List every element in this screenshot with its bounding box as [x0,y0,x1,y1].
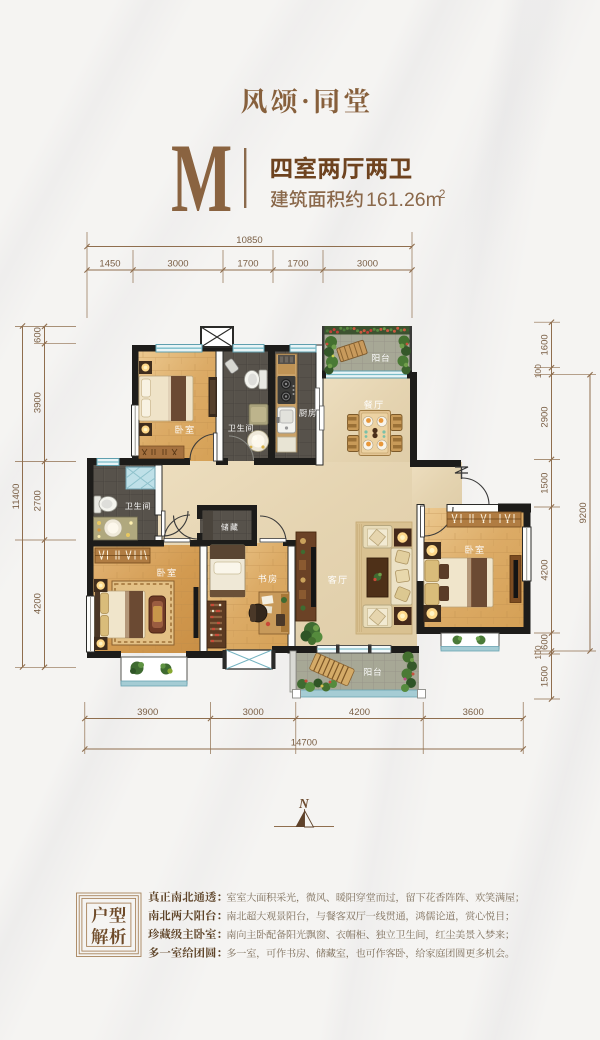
svg-text:9200: 9200 [578,502,589,523]
svg-text:4200: 4200 [540,559,551,580]
svg-text:1700: 1700 [287,259,308,270]
svg-text:1450: 1450 [99,259,120,270]
svg-text:M: M [171,123,232,233]
svg-text:2: 2 [439,189,445,201]
svg-text:2900: 2900 [540,406,551,427]
svg-text:1500: 1500 [540,473,551,494]
svg-text:3900: 3900 [137,707,158,718]
svg-text:11400: 11400 [11,484,22,510]
svg-text:3000: 3000 [357,259,378,270]
svg-text:1600: 1600 [540,334,551,355]
svg-text:3900: 3900 [33,392,44,413]
svg-text:161.26m: 161.26m [366,189,442,211]
svg-text:600: 600 [33,327,44,343]
svg-text:1500: 1500 [540,666,551,687]
svg-text:3000: 3000 [243,707,264,718]
svg-text:3600: 3600 [463,707,484,718]
svg-text:100: 100 [533,364,543,378]
svg-text:N: N [298,796,310,811]
svg-text:10850: 10850 [236,235,262,246]
svg-text:100: 100 [533,645,543,659]
svg-text:4200: 4200 [33,593,44,614]
svg-text:2700: 2700 [33,490,44,511]
svg-text:3000: 3000 [167,259,188,270]
svg-text:14700: 14700 [291,738,317,749]
svg-text:4200: 4200 [349,707,370,718]
svg-text:1700: 1700 [237,259,258,270]
